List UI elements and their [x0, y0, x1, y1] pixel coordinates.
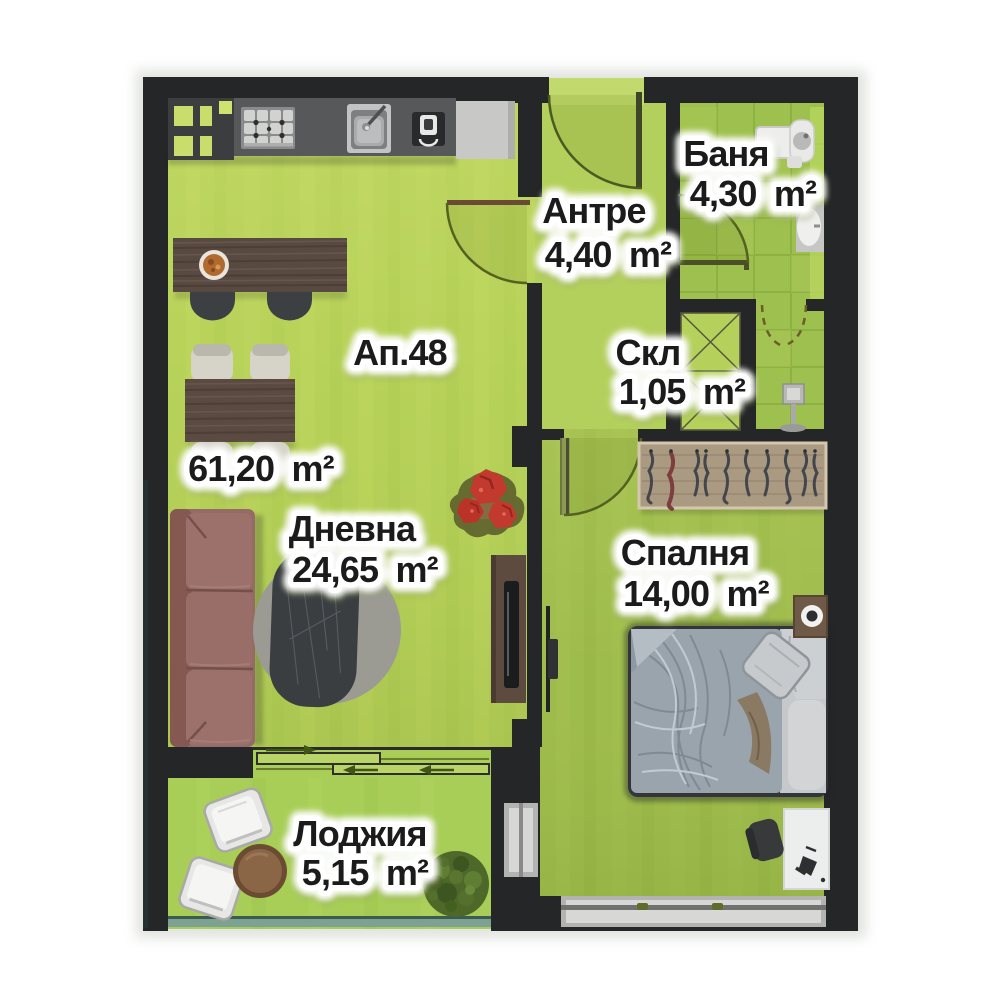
svg-text:4,30 m²: 4,30 m²: [690, 173, 817, 214]
svg-text:Лоджия: Лоджия: [293, 813, 427, 854]
svg-text:Ап.48: Ап.48: [353, 332, 447, 373]
svg-text:Баня: Баня: [683, 133, 768, 174]
svg-text:Скл: Скл: [616, 332, 681, 373]
svg-text:61,20 m²: 61,20 m²: [188, 448, 334, 489]
svg-text:1,05 m²: 1,05 m²: [619, 371, 746, 412]
svg-text:24,65 m²: 24,65 m²: [292, 549, 438, 590]
svg-text:Антре: Антре: [542, 190, 645, 231]
svg-text:4,40 m²: 4,40 m²: [545, 234, 672, 275]
svg-text:14,00 m²: 14,00 m²: [623, 573, 769, 614]
svg-text:Дневна: Дневна: [289, 508, 417, 549]
svg-text:Спалня: Спалня: [621, 532, 750, 573]
svg-text:5,15 m²: 5,15 m²: [302, 852, 429, 893]
